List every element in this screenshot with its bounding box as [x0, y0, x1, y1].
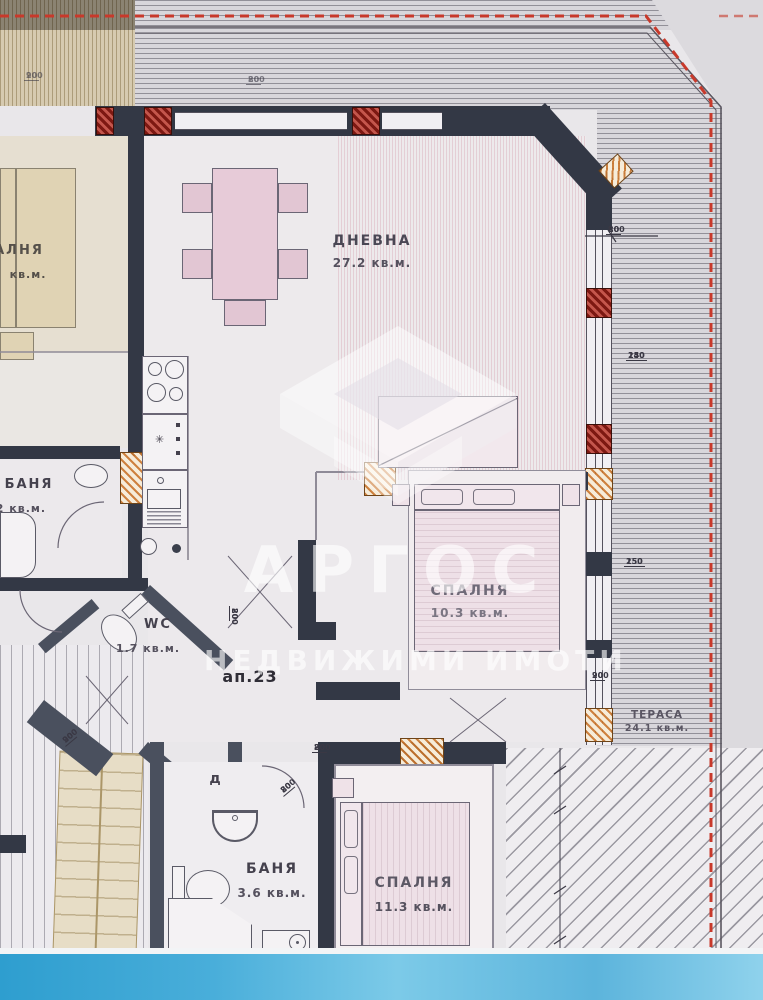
wc-area: 1.7 кв.м.	[108, 642, 188, 655]
photo-blue-band	[0, 954, 763, 1000]
left-bath-area: 4.2 кв.м.	[0, 502, 54, 515]
watermark-tagline: НЕДВИЖИМИ ИМОТИ	[204, 644, 594, 677]
bath-area: 3.6 кв.м.	[222, 886, 322, 900]
door-label: д	[206, 772, 226, 787]
neighbor-room-area: кв.м.	[0, 268, 56, 281]
living-room-area: 27.2 кв.м.	[312, 256, 432, 270]
bedroom1-area: 10.3 кв.м.	[410, 606, 530, 620]
terrace-area: 24.1 кв.м.	[620, 723, 694, 734]
neighbor-room-label: АЛНЯ	[0, 244, 50, 258]
bath-label: БАНЯ	[222, 862, 322, 877]
left-bath-label: БАНЯ	[0, 478, 64, 492]
terrace-label: ТЕРАСА	[620, 710, 694, 722]
bedroom2-area: 11.3 кв.м.	[354, 900, 474, 914]
bedroom2-label: СПАЛНЯ	[354, 876, 474, 891]
argos-logo-watermark	[248, 316, 548, 516]
wc-label: WC	[130, 618, 186, 632]
floor-plan: ✳	[0, 0, 763, 1000]
watermark-brand: АРГОС	[208, 534, 588, 608]
living-room-label: ДНЕВНА	[312, 234, 432, 249]
